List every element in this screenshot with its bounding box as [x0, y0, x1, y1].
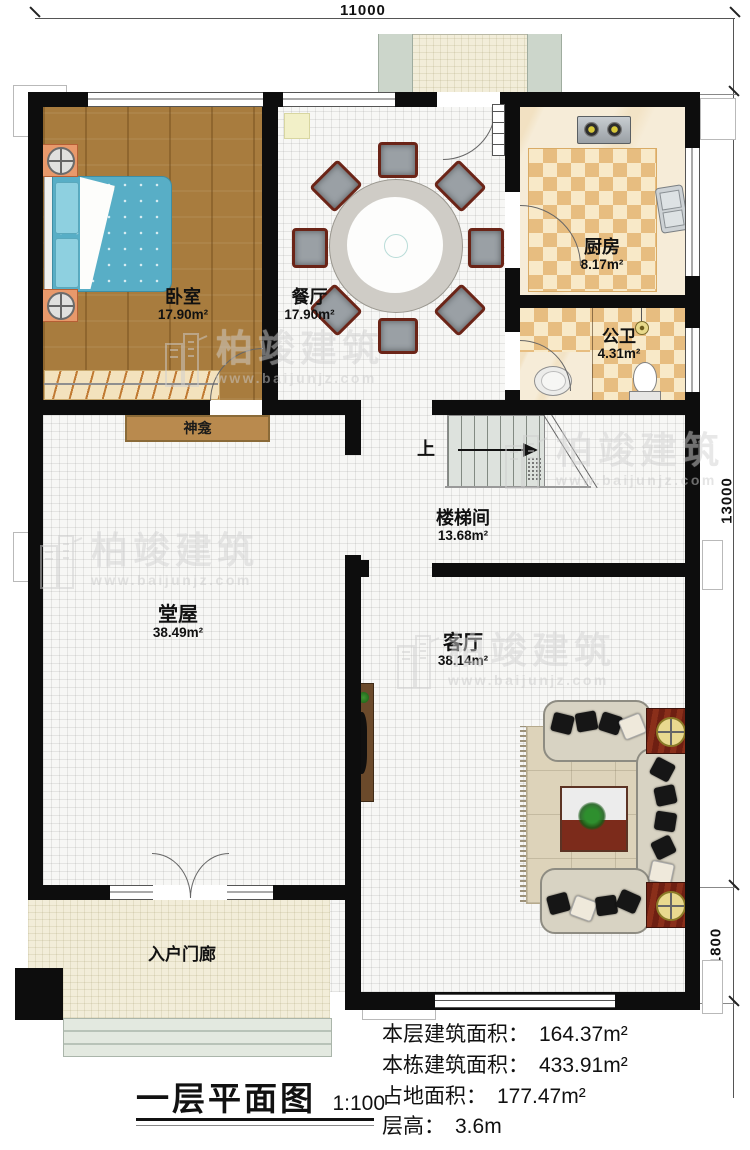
stat-building-area: 本栋建筑面积：433.91m²	[382, 1049, 628, 1079]
dimension-top-label: 11000	[340, 2, 386, 19]
room-name: 客厅	[414, 632, 512, 654]
stove	[577, 116, 631, 144]
dimension-stub	[700, 887, 736, 888]
wall-hall-bottom-left	[28, 885, 110, 900]
wall-bedroom-dining	[262, 107, 278, 415]
stat-value: 164.37m²	[539, 1023, 628, 1046]
back-porch-side	[378, 34, 413, 94]
stat-label: 本栋建筑面积：	[382, 1054, 529, 1077]
wall-center-lower	[345, 555, 361, 1010]
stat-value: 3.6m	[455, 1115, 502, 1138]
plan-title: 一层平面图	[136, 1080, 316, 1117]
sofa-pillow	[575, 710, 599, 732]
sink-basin	[662, 209, 684, 228]
exterior-sill	[700, 98, 736, 140]
dimension-stub	[700, 94, 736, 95]
living-window	[435, 994, 615, 1008]
stat-label: 占地面积：	[382, 1085, 487, 1108]
exterior-sill	[702, 540, 723, 590]
shrine-cabinet: 神龛	[125, 415, 270, 442]
living-label: 客厅 38.14m²	[414, 632, 512, 669]
back-door-leaf	[492, 104, 505, 156]
room-area: 17.90m²	[272, 308, 347, 323]
dining-chair	[378, 318, 418, 354]
room-area: 38.14m²	[414, 654, 512, 669]
floor-feature	[284, 113, 310, 139]
nightstand-lamp	[47, 292, 75, 320]
back-door-opening	[437, 92, 500, 107]
stat-floor-area: 本层建筑面积：164.37m²	[382, 1018, 628, 1048]
stair-dots	[527, 457, 541, 481]
wall-center-upper	[345, 400, 361, 455]
dining-chair	[292, 228, 328, 268]
dining-window	[283, 92, 395, 107]
dimension-tick	[728, 879, 739, 890]
bedroom-label: 卧室 17.90m²	[128, 288, 238, 323]
room-name: 堂屋	[128, 604, 228, 626]
stat-label: 本层建筑面积：	[382, 1023, 529, 1046]
dining-chair	[378, 142, 418, 178]
title-underline-thick	[136, 1118, 374, 1121]
shrine-label: 神龛	[184, 420, 212, 436]
bathroom-door-opening	[505, 332, 520, 390]
room-name: 卧室	[128, 288, 238, 308]
stairs-up-label: 上	[417, 435, 435, 461]
burner	[584, 122, 599, 137]
dining-table-center	[384, 234, 408, 258]
stair-direction-arrowhead	[523, 443, 538, 457]
room-area: 4.31m²	[580, 347, 658, 362]
stat-value: 433.91m²	[539, 1054, 628, 1077]
room-name: 餐厅	[272, 288, 347, 308]
plan-title-row: 一层平面图 1:100	[136, 1072, 385, 1120]
kitchen-window	[685, 148, 700, 276]
nightstand-lamp	[47, 147, 75, 175]
entry-porch-label: 入户门廊	[132, 946, 232, 965]
dimension-right-upper-label: 13000	[719, 471, 736, 531]
sofa-pillow	[654, 810, 678, 832]
room-area: 17.90m²	[128, 308, 238, 323]
sink-basin	[659, 190, 682, 211]
stairwell-label: 楼梯间 13.68m²	[418, 509, 508, 544]
coffee-table-plant	[578, 802, 606, 830]
burner	[607, 122, 622, 137]
wardrobe-rod	[44, 383, 218, 385]
stat-footprint-area: 占地面积：177.47m²	[382, 1080, 586, 1110]
bathroom-window	[685, 328, 700, 392]
kitchen-label: 厨房 8.17m²	[562, 238, 642, 273]
side-table-lamp	[656, 717, 686, 747]
bathroom-label: 公卫 4.31m²	[580, 328, 658, 362]
dimension-tick	[728, 995, 739, 1006]
stat-value: 177.47m²	[497, 1085, 586, 1108]
bed-pillow	[55, 238, 79, 288]
wall-left	[28, 92, 43, 900]
dimension-line-right	[733, 18, 734, 1098]
toilet-bowl	[633, 362, 657, 394]
wall-kitchen-bath	[505, 295, 700, 308]
wall-center-stub	[361, 560, 369, 577]
bed-pillow	[55, 182, 79, 234]
room-name: 入户门廊	[132, 946, 232, 965]
room-name: 楼梯间	[418, 509, 508, 529]
plan-scale: 1:100	[332, 1092, 385, 1115]
wall-hall-bottom-right	[273, 885, 345, 900]
porch-sidelight	[110, 885, 153, 900]
side-table-lamp	[656, 891, 686, 921]
exterior-sill	[702, 960, 723, 1014]
back-porch-side	[527, 34, 562, 94]
wall-mid-right	[432, 400, 700, 415]
porch-pillar	[15, 968, 63, 1020]
wall-mid-left	[28, 400, 360, 415]
hall-label: 堂屋 38.49m²	[128, 604, 228, 641]
entry-steps	[63, 1018, 332, 1057]
dimension-tick	[29, 6, 40, 17]
dining-chair	[468, 228, 504, 268]
stat-label: 层高：	[382, 1115, 445, 1138]
dimension-tick	[729, 6, 740, 17]
wall-stair-living	[432, 563, 700, 577]
kitchen-door-opening	[505, 192, 520, 268]
floor-plan-canvas: 11000 13000 1800	[0, 0, 750, 1150]
bedroom-door-opening	[210, 400, 262, 415]
dining-label: 餐厅 17.90m²	[272, 288, 347, 323]
room-area: 8.17m²	[562, 258, 642, 273]
back-porch-floor	[411, 34, 529, 96]
stat-floor-height: 层高：3.6m	[382, 1110, 502, 1140]
room-area: 13.68m²	[418, 529, 508, 544]
room-name: 厨房	[562, 238, 642, 258]
stair-direction-line	[458, 449, 524, 451]
porch-sidelight	[227, 885, 273, 900]
ceiling-lamp-cord	[641, 308, 642, 322]
wardrobe	[44, 370, 220, 400]
title-underline-thin	[136, 1125, 374, 1126]
stair-base-line	[445, 486, 591, 488]
room-name: 公卫	[580, 328, 658, 347]
sofa-pillow	[595, 895, 618, 917]
bedroom-window	[88, 92, 263, 107]
room-area: 38.49m²	[128, 626, 228, 641]
